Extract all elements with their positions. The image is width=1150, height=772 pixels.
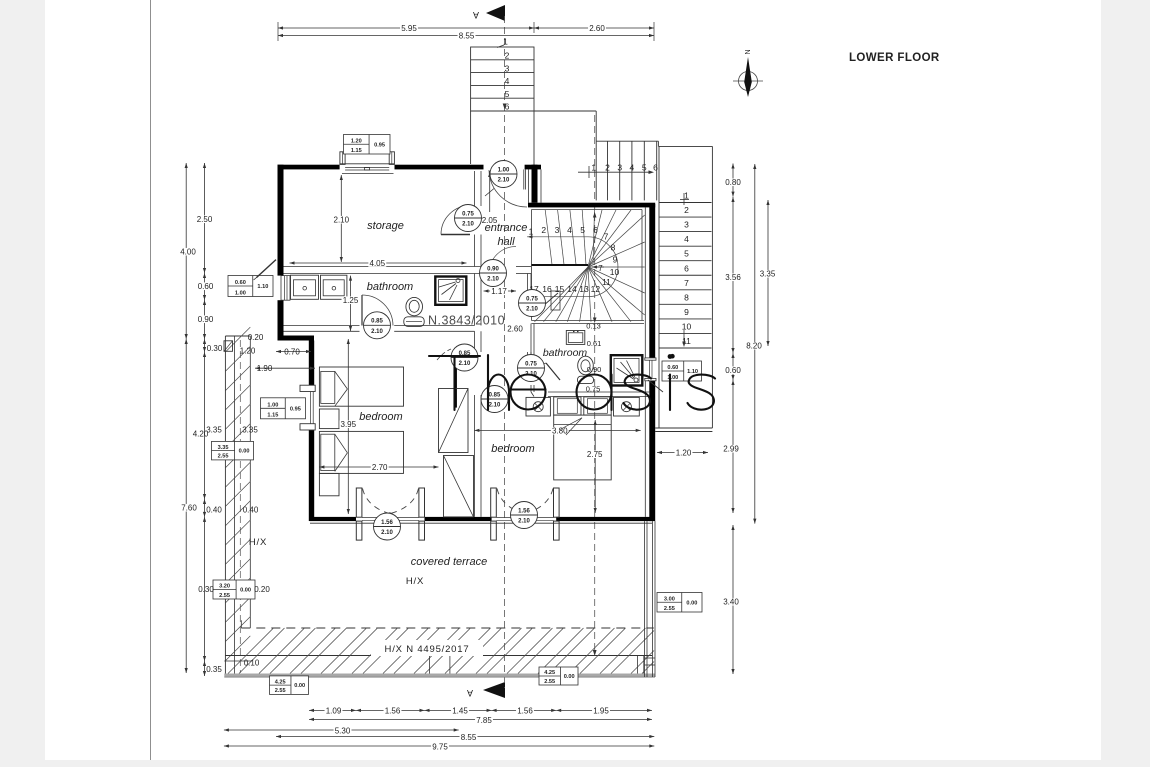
svg-text:7.60: 7.60	[181, 504, 197, 513]
svg-text:11: 11	[602, 277, 611, 287]
svg-text:1.20: 1.20	[676, 449, 692, 458]
svg-text:2: 2	[605, 163, 610, 173]
svg-text:1: 1	[684, 191, 689, 201]
svg-text:9.75: 9.75	[432, 743, 448, 752]
svg-text:0.35: 0.35	[206, 665, 222, 674]
svg-text:2.10: 2.10	[518, 519, 530, 525]
svg-text:0.85: 0.85	[371, 319, 383, 325]
svg-text:9: 9	[684, 307, 689, 317]
svg-text:2.05: 2.05	[482, 216, 498, 225]
svg-text:2.10: 2.10	[381, 530, 393, 536]
svg-text:10: 10	[682, 321, 692, 331]
svg-text:6: 6	[653, 163, 658, 173]
svg-text:5.95: 5.95	[401, 24, 417, 33]
svg-text:A: A	[467, 688, 473, 698]
svg-text:0.75: 0.75	[526, 296, 538, 302]
svg-text:8.55: 8.55	[459, 32, 475, 41]
svg-text:2.55: 2.55	[664, 606, 675, 612]
svg-text:0.00: 0.00	[240, 588, 251, 594]
svg-text:1.20: 1.20	[240, 346, 256, 355]
svg-text:4.20: 4.20	[193, 430, 209, 439]
svg-text:10: 10	[610, 267, 620, 277]
svg-text:2.10: 2.10	[526, 307, 538, 313]
svg-text:1.25: 1.25	[343, 296, 359, 305]
svg-text:3.35: 3.35	[242, 426, 258, 435]
svg-text:14: 14	[567, 284, 577, 294]
svg-text:1.15: 1.15	[267, 413, 278, 419]
svg-text:1.00: 1.00	[235, 290, 246, 296]
svg-text:5: 5	[642, 163, 647, 173]
svg-text:0.20: 0.20	[248, 333, 264, 342]
svg-text:1.10: 1.10	[257, 284, 268, 290]
svg-text:0.90: 0.90	[198, 315, 214, 324]
svg-text:8: 8	[611, 243, 616, 253]
svg-text:4: 4	[505, 76, 510, 86]
svg-text:0.30: 0.30	[207, 344, 223, 353]
svg-text:0.90: 0.90	[487, 266, 499, 272]
svg-text:2.10: 2.10	[334, 216, 350, 225]
svg-text:H/X: H/X	[406, 576, 424, 587]
svg-text:LOWER FLOOR: LOWER FLOOR	[849, 52, 940, 64]
svg-text:3.35: 3.35	[218, 445, 229, 451]
svg-text:0.30: 0.30	[198, 585, 214, 594]
svg-text:15: 15	[555, 284, 565, 294]
svg-text:4.25: 4.25	[544, 670, 555, 676]
svg-text:4.00: 4.00	[180, 248, 196, 257]
svg-text:2.10: 2.10	[459, 361, 471, 367]
svg-text:1.95: 1.95	[593, 706, 609, 715]
svg-text:3: 3	[617, 163, 622, 173]
svg-text:0.00: 0.00	[564, 674, 575, 680]
svg-text:7: 7	[598, 264, 603, 273]
svg-text:0.40: 0.40	[243, 506, 259, 515]
svg-text:8: 8	[684, 292, 689, 302]
svg-text:0.00: 0.00	[686, 600, 697, 606]
svg-text:2.99: 2.99	[723, 445, 739, 454]
svg-text:1.00: 1.00	[267, 403, 278, 409]
svg-text:3.56: 3.56	[725, 273, 741, 282]
svg-text:1.15: 1.15	[351, 148, 362, 154]
svg-text:5: 5	[684, 249, 689, 259]
svg-text:0.00: 0.00	[294, 683, 305, 689]
svg-text:3.40: 3.40	[723, 598, 739, 607]
svg-text:1.56: 1.56	[517, 706, 533, 715]
svg-text:0.70: 0.70	[284, 348, 300, 357]
svg-text:2: 2	[541, 225, 546, 235]
svg-text:3: 3	[505, 63, 510, 73]
svg-text:1: 1	[529, 227, 534, 237]
svg-text:bedroom: bedroom	[359, 411, 402, 423]
svg-text:0.13: 0.13	[586, 322, 601, 331]
svg-text:0.75: 0.75	[586, 385, 601, 394]
svg-text:3.35: 3.35	[206, 426, 222, 435]
svg-text:N: N	[745, 49, 752, 54]
svg-text:0.20: 0.20	[254, 585, 270, 594]
svg-text:2: 2	[684, 205, 689, 215]
svg-text:7: 7	[684, 278, 689, 288]
svg-text:16: 16	[542, 284, 552, 294]
svg-text:2.60: 2.60	[507, 325, 523, 334]
svg-text:bedroom: bedroom	[491, 443, 534, 455]
svg-text:3.35: 3.35	[760, 270, 776, 279]
svg-text:H/X N 4495/2017: H/X N 4495/2017	[385, 644, 470, 655]
svg-text:1.45: 1.45	[452, 706, 468, 715]
svg-text:4: 4	[567, 225, 572, 235]
svg-text:N.3843/2010: N.3843/2010	[428, 314, 505, 328]
svg-text:0.60: 0.60	[725, 366, 741, 375]
svg-text:2.70: 2.70	[372, 463, 388, 472]
svg-text:0.00: 0.00	[239, 449, 250, 455]
svg-text:0.95: 0.95	[290, 406, 301, 412]
svg-text:5: 5	[580, 225, 585, 235]
svg-text:1.56: 1.56	[518, 508, 530, 514]
svg-text:2.55: 2.55	[544, 679, 555, 685]
svg-text:2.10: 2.10	[462, 222, 474, 228]
svg-text:2: 2	[505, 51, 510, 61]
svg-text:H/X: H/X	[249, 537, 267, 548]
svg-text:0.60: 0.60	[667, 365, 678, 371]
svg-text:2.55: 2.55	[275, 688, 286, 694]
svg-text:0.40: 0.40	[206, 506, 222, 515]
svg-text:2.55: 2.55	[218, 454, 229, 460]
svg-text:hall: hall	[497, 236, 515, 248]
svg-text:storage: storage	[367, 220, 404, 232]
svg-text:2.75: 2.75	[587, 450, 603, 459]
svg-text:13: 13	[579, 284, 589, 294]
svg-text:7.85: 7.85	[476, 716, 492, 725]
svg-text:6: 6	[684, 263, 689, 273]
svg-text:4.25: 4.25	[275, 679, 286, 685]
svg-text:0.85: 0.85	[489, 392, 501, 398]
svg-text:0.61: 0.61	[587, 339, 602, 348]
svg-text:5: 5	[505, 89, 510, 99]
svg-text:0.80: 0.80	[725, 178, 741, 187]
svg-text:covered terrace: covered terrace	[411, 556, 487, 568]
svg-text:9: 9	[613, 255, 618, 265]
svg-text:4.05: 4.05	[370, 259, 386, 268]
svg-text:2.10: 2.10	[489, 403, 501, 409]
svg-text:2.10: 2.10	[498, 178, 510, 184]
svg-text:2.10: 2.10	[371, 329, 383, 335]
svg-text:4: 4	[630, 163, 635, 173]
svg-text:1.56: 1.56	[381, 520, 393, 526]
svg-text:3.95: 3.95	[341, 420, 357, 429]
svg-text:2.60: 2.60	[589, 24, 605, 33]
svg-text:8.55: 8.55	[461, 733, 477, 742]
svg-text:2.55: 2.55	[219, 593, 230, 599]
svg-text:4: 4	[684, 234, 689, 244]
svg-text:0.10: 0.10	[244, 659, 260, 668]
svg-text:0.75: 0.75	[462, 211, 474, 217]
svg-text:8.20: 8.20	[746, 342, 762, 351]
svg-text:2.50: 2.50	[197, 215, 213, 224]
svg-text:5.30: 5.30	[335, 726, 351, 735]
svg-text:1.00: 1.00	[498, 167, 510, 173]
svg-text:0.75: 0.75	[525, 361, 537, 367]
svg-text:1.20: 1.20	[351, 138, 362, 144]
svg-text:2.10: 2.10	[487, 277, 499, 283]
svg-text:0.90: 0.90	[587, 365, 602, 374]
svg-text:0.95: 0.95	[374, 142, 385, 148]
svg-text:3.80: 3.80	[552, 427, 568, 436]
svg-text:1: 1	[591, 163, 596, 173]
svg-text:3: 3	[555, 225, 560, 235]
svg-text:1.09: 1.09	[326, 706, 342, 715]
svg-text:3.20: 3.20	[219, 584, 230, 590]
svg-text:A: A	[473, 10, 479, 20]
svg-text:1.17: 1.17	[491, 287, 507, 296]
svg-text:12: 12	[591, 284, 601, 294]
svg-text:6: 6	[593, 225, 598, 235]
svg-text:1.90: 1.90	[257, 364, 273, 373]
svg-text:3.00: 3.00	[664, 596, 675, 602]
svg-text:1.56: 1.56	[385, 706, 401, 715]
svg-text:bathroom: bathroom	[367, 281, 413, 293]
svg-text:bathroom: bathroom	[543, 347, 588, 359]
svg-text:6: 6	[505, 102, 510, 112]
svg-text:0.60: 0.60	[235, 280, 246, 286]
svg-text:3: 3	[684, 220, 689, 230]
svg-text:7: 7	[604, 232, 609, 242]
svg-text:0.60: 0.60	[198, 282, 214, 291]
